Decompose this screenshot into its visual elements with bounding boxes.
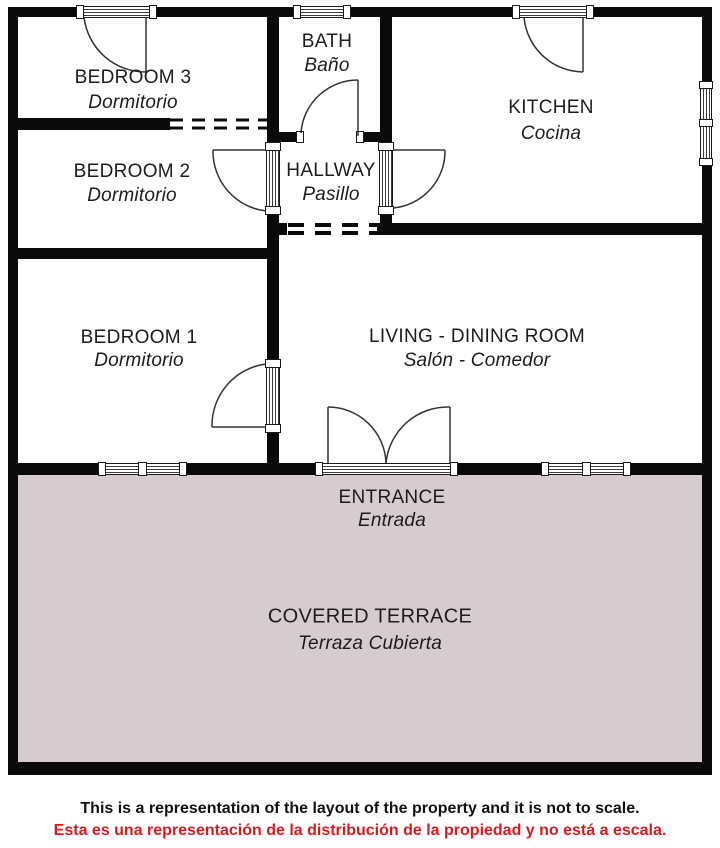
- kitchen-window-divider: [699, 119, 713, 127]
- bath-door-post: [356, 131, 364, 143]
- living-dining-sublabel: Salón - Comedor: [404, 350, 551, 372]
- wall-bottom: [8, 762, 712, 775]
- kitchen-door-post: [512, 5, 520, 19]
- floor-plan: BEDROOM 3 Dormitorio BATH Baño KITCHEN C…: [0, 0, 720, 848]
- wall-hallway-corner: [267, 223, 287, 235]
- bedroom1-sublabel: Dormitorio: [94, 350, 184, 372]
- disclaimer-spanish: Esta es una representación de la distrib…: [54, 822, 667, 840]
- disclaimer-english: This is a representation of the layout o…: [80, 800, 639, 818]
- covered-terrace-label: COVERED TERRACE: [268, 606, 472, 629]
- bedroom1-window-post: [98, 462, 106, 476]
- bedroom2-sublabel: Dormitorio: [87, 185, 177, 207]
- bedroom1-window-divider: [138, 462, 147, 476]
- bedroom3-door-arc: [84, 17, 146, 72]
- bath-door-post: [296, 131, 304, 143]
- kitchen-label: KITCHEN: [508, 97, 594, 119]
- bedroom2-door-post: [265, 142, 281, 151]
- bedroom1-window-post: [179, 462, 187, 476]
- living-window-post: [623, 462, 631, 476]
- bath-window-post: [293, 5, 301, 19]
- living-window-post: [541, 462, 549, 476]
- hallway-label: HALLWAY: [286, 160, 375, 182]
- entrance-sublabel: Entrada: [358, 510, 426, 532]
- bedroom2-door-frame: [266, 143, 280, 215]
- bath-window: [297, 6, 347, 18]
- kitchen-door-post: [586, 5, 594, 19]
- living-dining-label: LIVING - DINING ROOM: [369, 326, 585, 348]
- entrance-door-post: [315, 462, 323, 476]
- bedroom3-door-post: [149, 5, 157, 19]
- entrance-door-right-arc: [386, 407, 450, 463]
- bedroom2-door-arc: [213, 150, 266, 211]
- wall-kitchen-south: [377, 223, 702, 235]
- wall-bedroom2-bedroom1: [18, 248, 267, 259]
- bedroom2-label: BEDROOM 2: [74, 161, 191, 183]
- hall-kitchen-door-post: [378, 142, 394, 151]
- bedroom1-label: BEDROOM 1: [81, 327, 198, 349]
- bedroom3-label: BEDROOM 3: [75, 67, 192, 89]
- covered-terrace-sublabel: Terraza Cubierta: [298, 633, 442, 655]
- living-window-divider: [582, 462, 591, 476]
- kitchen-door-frame: [516, 6, 590, 18]
- wall-bedroom3-bedroom2: [18, 118, 170, 130]
- hall-kitchen-door-post: [378, 206, 394, 215]
- kitchen-window-post: [699, 81, 713, 89]
- bath-label: BATH: [302, 31, 352, 53]
- entrance-door-post: [450, 462, 458, 476]
- bedroom1-door-post: [265, 359, 281, 368]
- bedroom1-door-arc: [212, 364, 266, 427]
- bedroom3-sublabel: Dormitorio: [88, 92, 178, 114]
- bath-window-post: [343, 5, 351, 19]
- bedroom1-door-post: [265, 424, 281, 433]
- entrance-door-left-arc: [328, 407, 386, 463]
- kitchen-sublabel: Cocina: [521, 123, 581, 145]
- bedroom1-door-frame: [266, 360, 280, 432]
- kitchen-window-post: [699, 158, 713, 166]
- kitchen-door-arc: [524, 17, 583, 72]
- entrance-label: ENTRANCE: [339, 487, 446, 509]
- wall-left: [8, 7, 18, 775]
- hall-kitchen-door-frame: [379, 143, 393, 215]
- bedroom3-door-frame: [80, 6, 153, 18]
- bedroom2-door-post: [265, 206, 281, 215]
- hall-kitchen-door-arc: [393, 150, 445, 208]
- bedroom3-door-post: [76, 5, 84, 19]
- bath-door-arc: [301, 80, 358, 133]
- entrance-door-threshold: [320, 463, 453, 475]
- hallway-sublabel: Pasillo: [302, 184, 359, 206]
- bath-sublabel: Baño: [304, 55, 349, 77]
